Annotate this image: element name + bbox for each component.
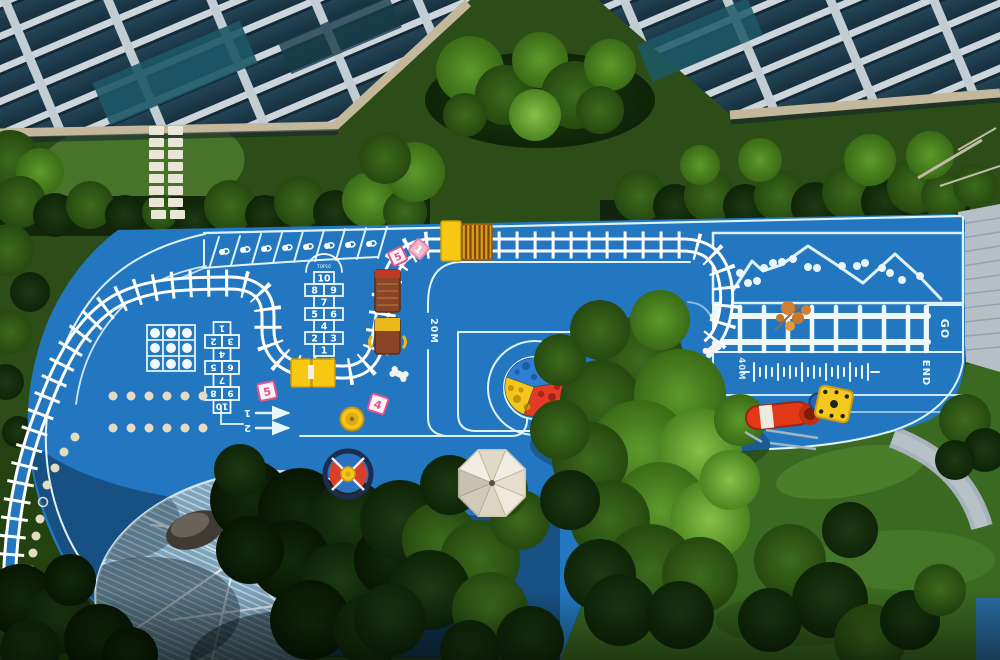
- bottom-shadow: [0, 590, 1000, 660]
- hop-l-5: 5: [210, 362, 216, 372]
- bubble-grid: [147, 325, 195, 371]
- hop-c-1: 1: [321, 346, 328, 357]
- tree-cluster-gap: [425, 32, 655, 148]
- distance-marker-40m: 40M: [736, 357, 746, 380]
- tunnel-car: [441, 221, 492, 261]
- hop-c-4: 4: [321, 322, 328, 333]
- hop-l-10: 10: [216, 401, 229, 411]
- hop-c-10: 10: [317, 274, 331, 285]
- umbrella-center: [489, 480, 495, 486]
- hop-l-2: 2: [210, 336, 216, 346]
- hop-l-6: 6: [227, 362, 233, 372]
- lane-number-1: 1: [243, 407, 251, 418]
- aerial-playground-photo: TOP10 10 8 9 7 5 6 4 2 3 1 1 2 3 4 5 6 7…: [0, 0, 1000, 660]
- go-label: GO: [938, 319, 951, 339]
- hop-l-8: 8: [210, 388, 216, 398]
- hop-l-3: 3: [227, 336, 233, 346]
- hop-c-9: 9: [330, 286, 337, 297]
- dice-mid: 5: [257, 381, 277, 401]
- scene-canvas: TOP10 10 8 9 7 5 6 4 2 3 1 1 2 3 4 5 6 7…: [0, 0, 1000, 660]
- hop-c-2: 2: [311, 334, 318, 345]
- hopscotch-dome-label: TOP10: [316, 264, 331, 269]
- hop-l-1: 1: [219, 323, 225, 333]
- wooden-car: [375, 270, 400, 312]
- hop-l-4: 4: [219, 349, 225, 359]
- hop-c-7: 7: [321, 298, 328, 309]
- hop-c-3: 3: [330, 334, 337, 345]
- end-label: END: [920, 360, 931, 387]
- beach-wheel: [325, 451, 371, 497]
- distance-marker-20m: 20M: [428, 318, 439, 344]
- hop-c-5: 5: [311, 310, 318, 321]
- slide-canopy: [814, 385, 854, 423]
- hop-l-7: 7: [219, 375, 225, 385]
- yellow-cab-car: [291, 359, 335, 387]
- wood-yellow-car: [370, 318, 406, 354]
- hop-l-9: 9: [227, 388, 233, 398]
- dice-right: 4: [367, 393, 388, 414]
- hop-c-6: 6: [330, 310, 337, 321]
- spinner-toy: [341, 408, 364, 431]
- hop-c-8: 8: [311, 286, 318, 297]
- lane-number-2: 2: [243, 422, 251, 433]
